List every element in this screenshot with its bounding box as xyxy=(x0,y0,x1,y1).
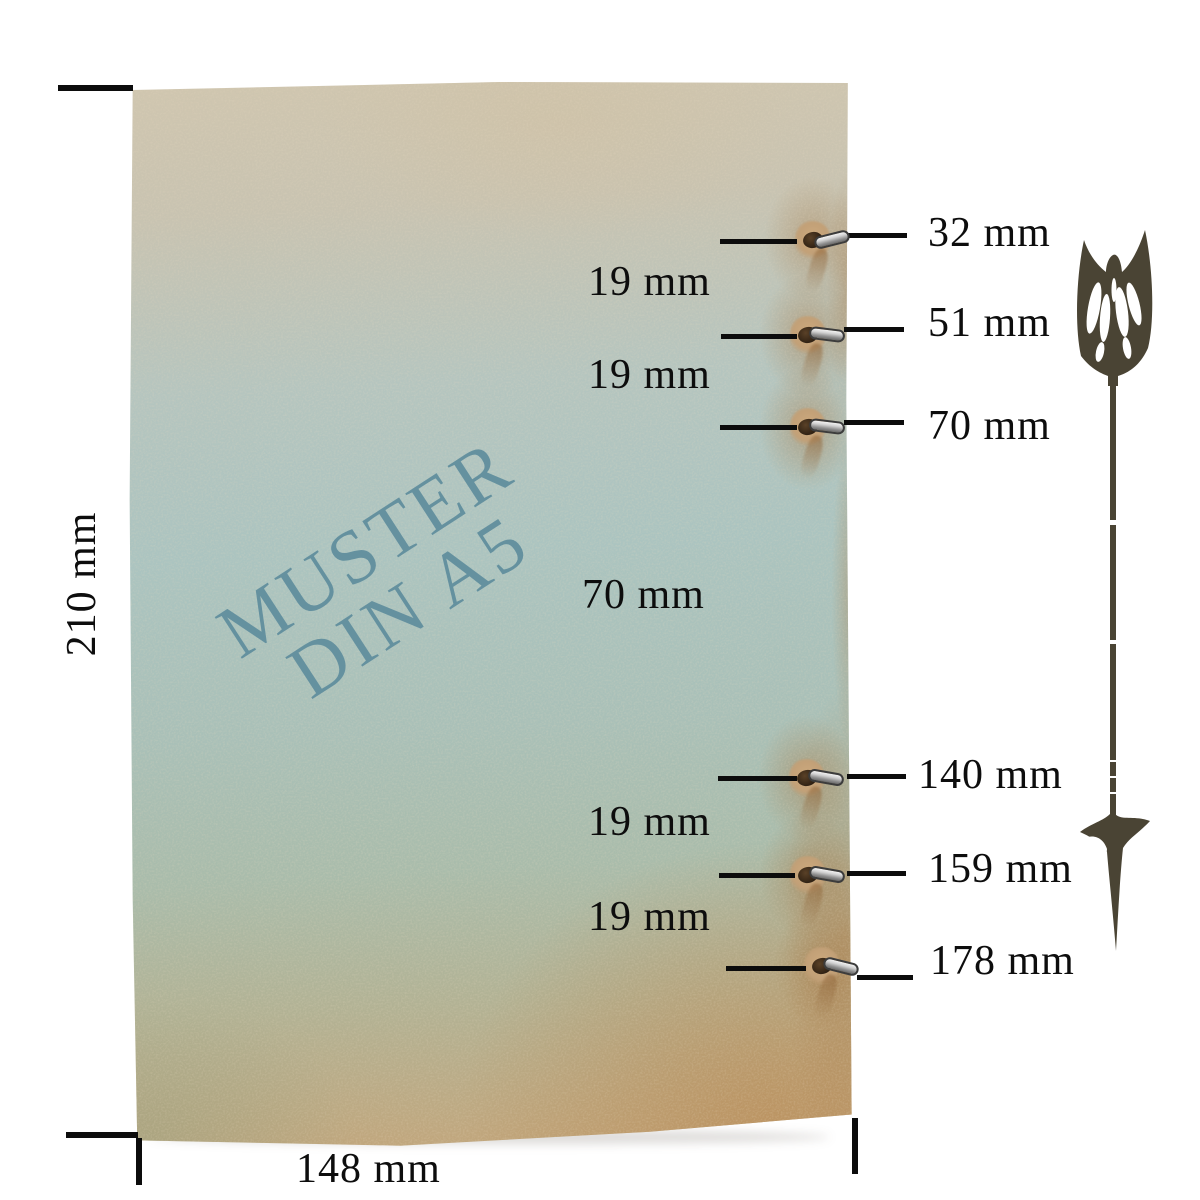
hole-5-left-line xyxy=(719,873,795,878)
height-dimension-label: 210 mm xyxy=(61,512,103,657)
rustic-down-arrow-icon xyxy=(1070,220,1162,955)
hole-4-left-line xyxy=(718,776,797,781)
hole-1-left-line xyxy=(720,239,797,244)
hole-2-left-line xyxy=(721,334,797,339)
hole-6-position-label: 178 mm xyxy=(930,940,1075,982)
hole-3-position-label: 70 mm xyxy=(928,405,1051,447)
width-tick-left xyxy=(136,1138,142,1185)
diagram-canvas: MUSTER DIN A5 32 mm 19 mm 51 mm 19 mm 70… xyxy=(0,0,1200,1200)
hole-2-right-line xyxy=(844,327,904,332)
hole-6-right-line xyxy=(857,975,913,980)
hole-2-position-label: 51 mm xyxy=(928,302,1051,344)
hole-3-right-line xyxy=(844,420,904,425)
gap-3-label: 70 mm xyxy=(582,574,705,616)
gap-2-label: 19 mm xyxy=(588,354,711,396)
hole-4-right-line xyxy=(847,774,906,779)
height-tick-top xyxy=(58,85,133,91)
hole-1-right-line xyxy=(845,233,907,238)
gap-1-label: 19 mm xyxy=(588,261,711,303)
gap-4-label: 19 mm xyxy=(588,801,711,843)
hole-3-left-line xyxy=(720,425,797,430)
hole-5-position-label: 159 mm xyxy=(928,848,1073,890)
width-dimension-label: 148 mm xyxy=(296,1148,441,1190)
height-tick-bottom xyxy=(66,1132,138,1138)
gap-5-label: 19 mm xyxy=(588,896,711,938)
hole-4-position-label: 140 mm xyxy=(918,754,1063,796)
hole-6-left-line xyxy=(726,966,806,971)
hole-1-position-label: 32 mm xyxy=(928,212,1051,254)
hole-5-right-line xyxy=(847,871,906,876)
width-tick-right xyxy=(852,1118,858,1174)
